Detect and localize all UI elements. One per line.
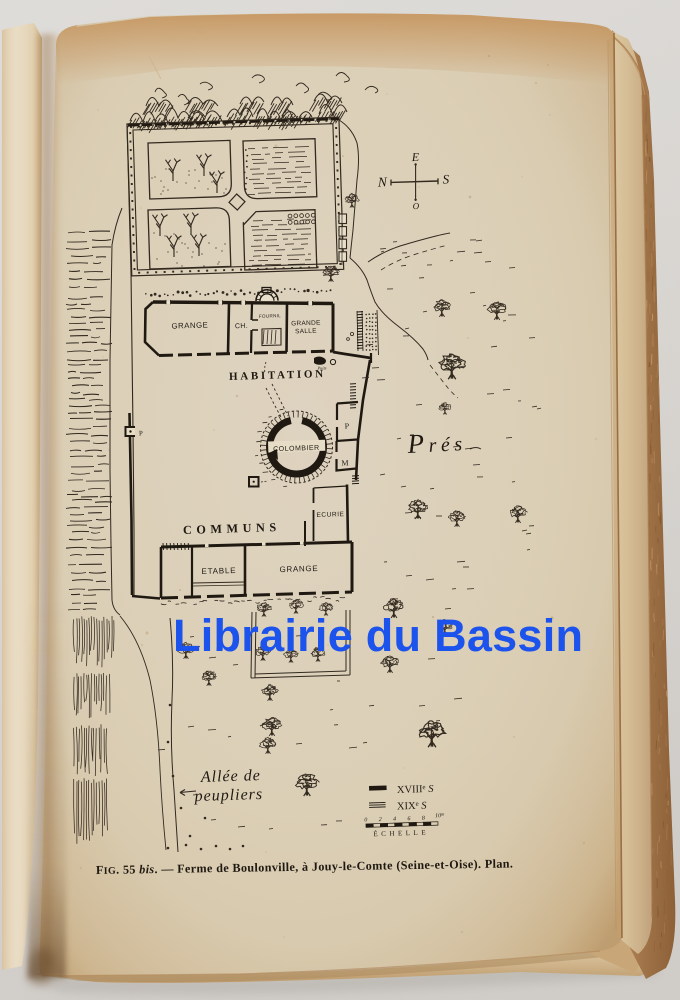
svg-text:E: E xyxy=(410,150,419,164)
svg-text:4: 4 xyxy=(393,816,396,823)
svg-text:XVIIIe S: XVIIIe S xyxy=(397,783,435,796)
svg-text:SALLE: SALLE xyxy=(295,328,317,336)
svg-text:peupliers: peupliers xyxy=(193,786,263,805)
svg-text:Allée de: Allée de xyxy=(200,767,261,786)
svg-text:FOURNIL: FOURNIL xyxy=(259,313,282,319)
svg-text:ECURIE: ECURIE xyxy=(316,511,344,519)
svg-text:GRANGE: GRANGE xyxy=(171,320,208,330)
svg-text:6: 6 xyxy=(407,816,410,822)
svg-text:XIXe S: XIXe S xyxy=(397,800,428,813)
svg-text:8: 8 xyxy=(422,816,425,822)
svg-text:P: P xyxy=(139,429,143,437)
svg-text:GRANGE: GRANGE xyxy=(279,564,318,574)
svg-text:Puits: Puits xyxy=(316,365,326,370)
svg-text:M: M xyxy=(341,458,348,467)
svg-text:N: N xyxy=(377,174,388,189)
svg-text:COLOMBIER: COLOMBIER xyxy=(273,445,320,453)
svg-text:GRANDE: GRANDE xyxy=(291,320,321,328)
svg-text:Librairie du Bassin: Librairie du Bassin xyxy=(173,610,583,661)
svg-text:P: P xyxy=(345,421,350,430)
svg-text:O: O xyxy=(413,201,420,211)
svg-text:2: 2 xyxy=(379,817,382,823)
svg-text:0: 0 xyxy=(364,817,367,823)
svg-text:CH.: CH. xyxy=(235,323,248,330)
svg-text:S: S xyxy=(442,171,449,186)
svg-text:ETABLE: ETABLE xyxy=(201,566,236,576)
